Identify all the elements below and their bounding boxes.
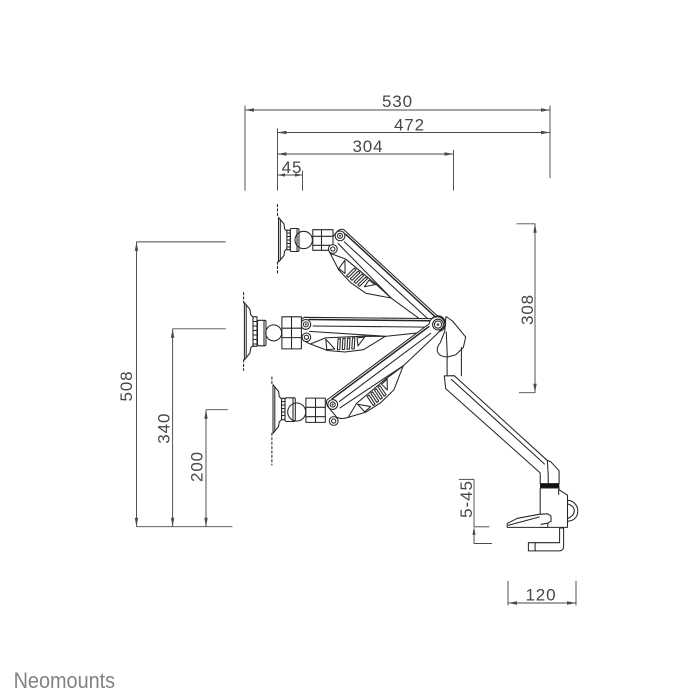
svg-text:120: 120 (525, 585, 556, 604)
svg-text:5-45: 5-45 (457, 480, 476, 518)
svg-text:472: 472 (394, 116, 425, 135)
svg-text:308: 308 (518, 294, 537, 325)
svg-text:200: 200 (188, 451, 207, 482)
svg-text:304: 304 (352, 137, 383, 156)
svg-text:340: 340 (155, 413, 174, 444)
svg-text:45: 45 (282, 158, 303, 177)
svg-text:Neomounts: Neomounts (14, 668, 116, 693)
svg-text:530: 530 (382, 92, 413, 111)
svg-text:508: 508 (117, 370, 136, 401)
